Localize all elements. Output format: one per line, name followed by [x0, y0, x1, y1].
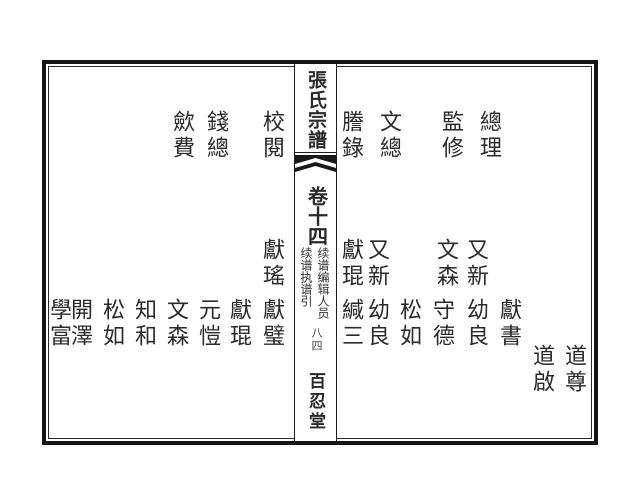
person-name: 獻瑤 [261, 238, 283, 290]
person-name: 道啟 [531, 344, 553, 396]
spine-column: 張氏宗譜 卷十四 续谱编辑人员 续谱执谱引 八四 百忍堂 [294, 64, 337, 441]
person-name: 獻書 [498, 298, 520, 350]
hall-name: 百忍堂 [307, 372, 324, 432]
person-name: 又新 [465, 238, 487, 290]
person-name: 獻琨 [228, 298, 250, 350]
person-name: 守德 [431, 298, 453, 350]
role-title: 錢總 [205, 110, 227, 162]
page-border: 總理 監修 文總 謄錄 又新 文森 又新 獻琨 獻書 幼良 守德 松如 幼良 緘… [42, 60, 598, 445]
person-name: 松如 [101, 298, 123, 350]
person-name: 獻琨 [340, 238, 362, 290]
person-name: 開澤 [69, 298, 91, 350]
book-title: 張氏宗譜 [306, 70, 325, 150]
person-name: 學富 [48, 298, 70, 350]
person-name: 獻璧 [261, 298, 283, 350]
spine-divider [295, 152, 336, 153]
person-name: 又新 [366, 238, 388, 290]
role-title: 謄錄 [340, 110, 362, 162]
person-name: 松如 [398, 298, 420, 350]
person-name: 知和 [133, 298, 155, 350]
fishtail-icon [295, 155, 336, 181]
person-name: 道尊 [563, 344, 585, 396]
role-title: 文總 [378, 110, 400, 162]
volume-label: 卷十四 [306, 186, 326, 246]
role-title: 監修 [440, 110, 462, 162]
scanned-genealogy-page: 總理 監修 文總 謄錄 又新 文森 又新 獻琨 獻書 幼良 守德 松如 幼良 緘… [0, 0, 640, 480]
person-name: 緘三 [340, 298, 362, 350]
editors-note: 续谱编辑人员 [317, 247, 329, 319]
holders-note: 续谱执谱引 [300, 247, 312, 307]
person-name: 元愷 [197, 298, 219, 350]
role-title: 歛費 [171, 110, 193, 162]
role-title: 校閱 [261, 110, 283, 162]
page-number: 八四 [310, 327, 321, 353]
person-name: 幼良 [366, 298, 388, 350]
person-name: 文森 [435, 238, 457, 290]
person-name: 幼良 [465, 298, 487, 350]
role-title: 總理 [478, 110, 500, 162]
person-name: 文森 [165, 298, 187, 350]
